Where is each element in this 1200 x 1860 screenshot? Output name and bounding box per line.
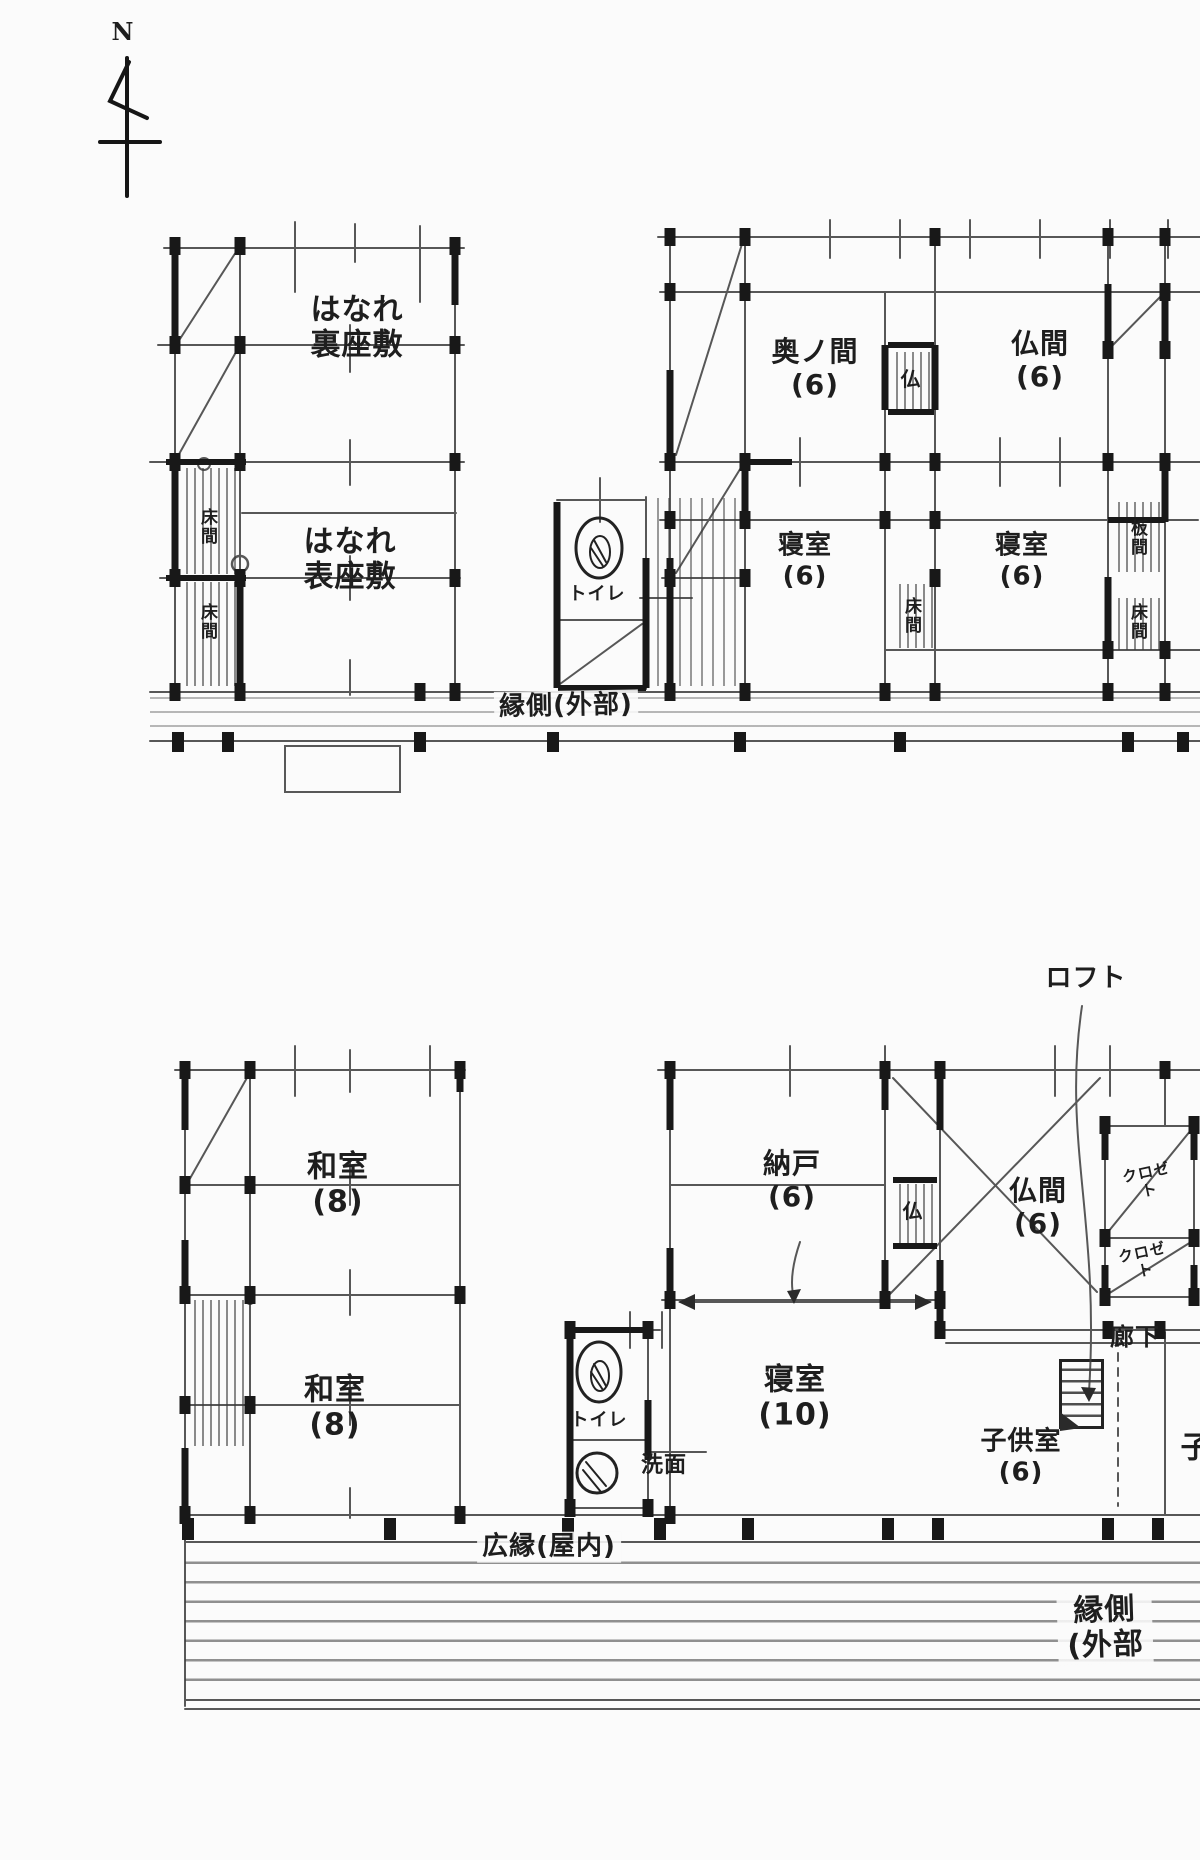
upper-plan-lines <box>150 220 1200 792</box>
label-butsudan-upper: 仏 <box>901 368 922 392</box>
room-label-kodomo-shitsu: 子供室 (6) <box>980 1426 1061 1487</box>
label-rouka: 廊下 <box>1110 1323 1160 1351</box>
room-label-butsuma-upper: 仏間 (6) <box>1011 327 1069 393</box>
lower-plan-lines <box>175 1006 1200 1709</box>
label-partial-room: 子 <box>1181 1430 1200 1465</box>
label-loft: ロフト <box>1045 964 1126 995</box>
room-label-washitsu-upper: 和室 (8) <box>307 1150 369 1221</box>
label-toilet-upper: トイレ <box>569 583 626 604</box>
label-butsudan-lower: 仏 <box>903 1200 924 1224</box>
label-engawa-upper: 縁側(外部) <box>494 689 638 722</box>
room-label-washitsu-lower: 和室 (8) <box>304 1373 366 1444</box>
room-label-hanare-omote-zashiki: はなれ 表座敷 <box>304 525 397 596</box>
room-label-shinshitsu-upper-right: 寝室 (6) <box>995 530 1049 591</box>
room-label-shinshitsu-upper-left: 寝室 (6) <box>778 530 832 591</box>
room-label-hanare-ura-zashiki: はなれ 裏座敷 <box>311 293 404 364</box>
label-hiroen: 広縁(屋内) <box>477 1532 621 1563</box>
label-tokonoma-upper-left-1: 床間 <box>197 508 217 546</box>
label-tokonoma-upper-center: 床間 <box>901 597 921 635</box>
sketch-lines <box>0 0 1200 1860</box>
room-label-butsuma-lower: 仏間 (6) <box>1009 1174 1067 1240</box>
label-toilet-lower: トイレ <box>571 1409 628 1430</box>
label-tokonoma-upper-left-2: 床間 <box>197 603 217 641</box>
room-label-shinshitsu-lower: 寝室 (10) <box>758 1363 831 1434</box>
label-engawa-lower: 縁側(外部 <box>1056 1591 1153 1665</box>
room-label-oku-no-ma: 奥ノ間 (6) <box>771 335 858 401</box>
label-senmen: 洗面 <box>641 1453 687 1479</box>
label-tokonoma-upper-right: 床間 <box>1127 603 1147 641</box>
floor-plan-sketch: N はなれ 裏座敷 はなれ 表座敷 奥ノ間 (6) 仏間 (6) 仏 寝室 (6… <box>0 0 1200 1860</box>
label-itanoma: 板間 <box>1127 519 1147 557</box>
fixtures <box>576 518 622 1493</box>
north-arrow-icon <box>100 58 160 196</box>
room-label-nando: 納戸 (6) <box>763 1147 821 1213</box>
north-label: N <box>112 18 135 46</box>
